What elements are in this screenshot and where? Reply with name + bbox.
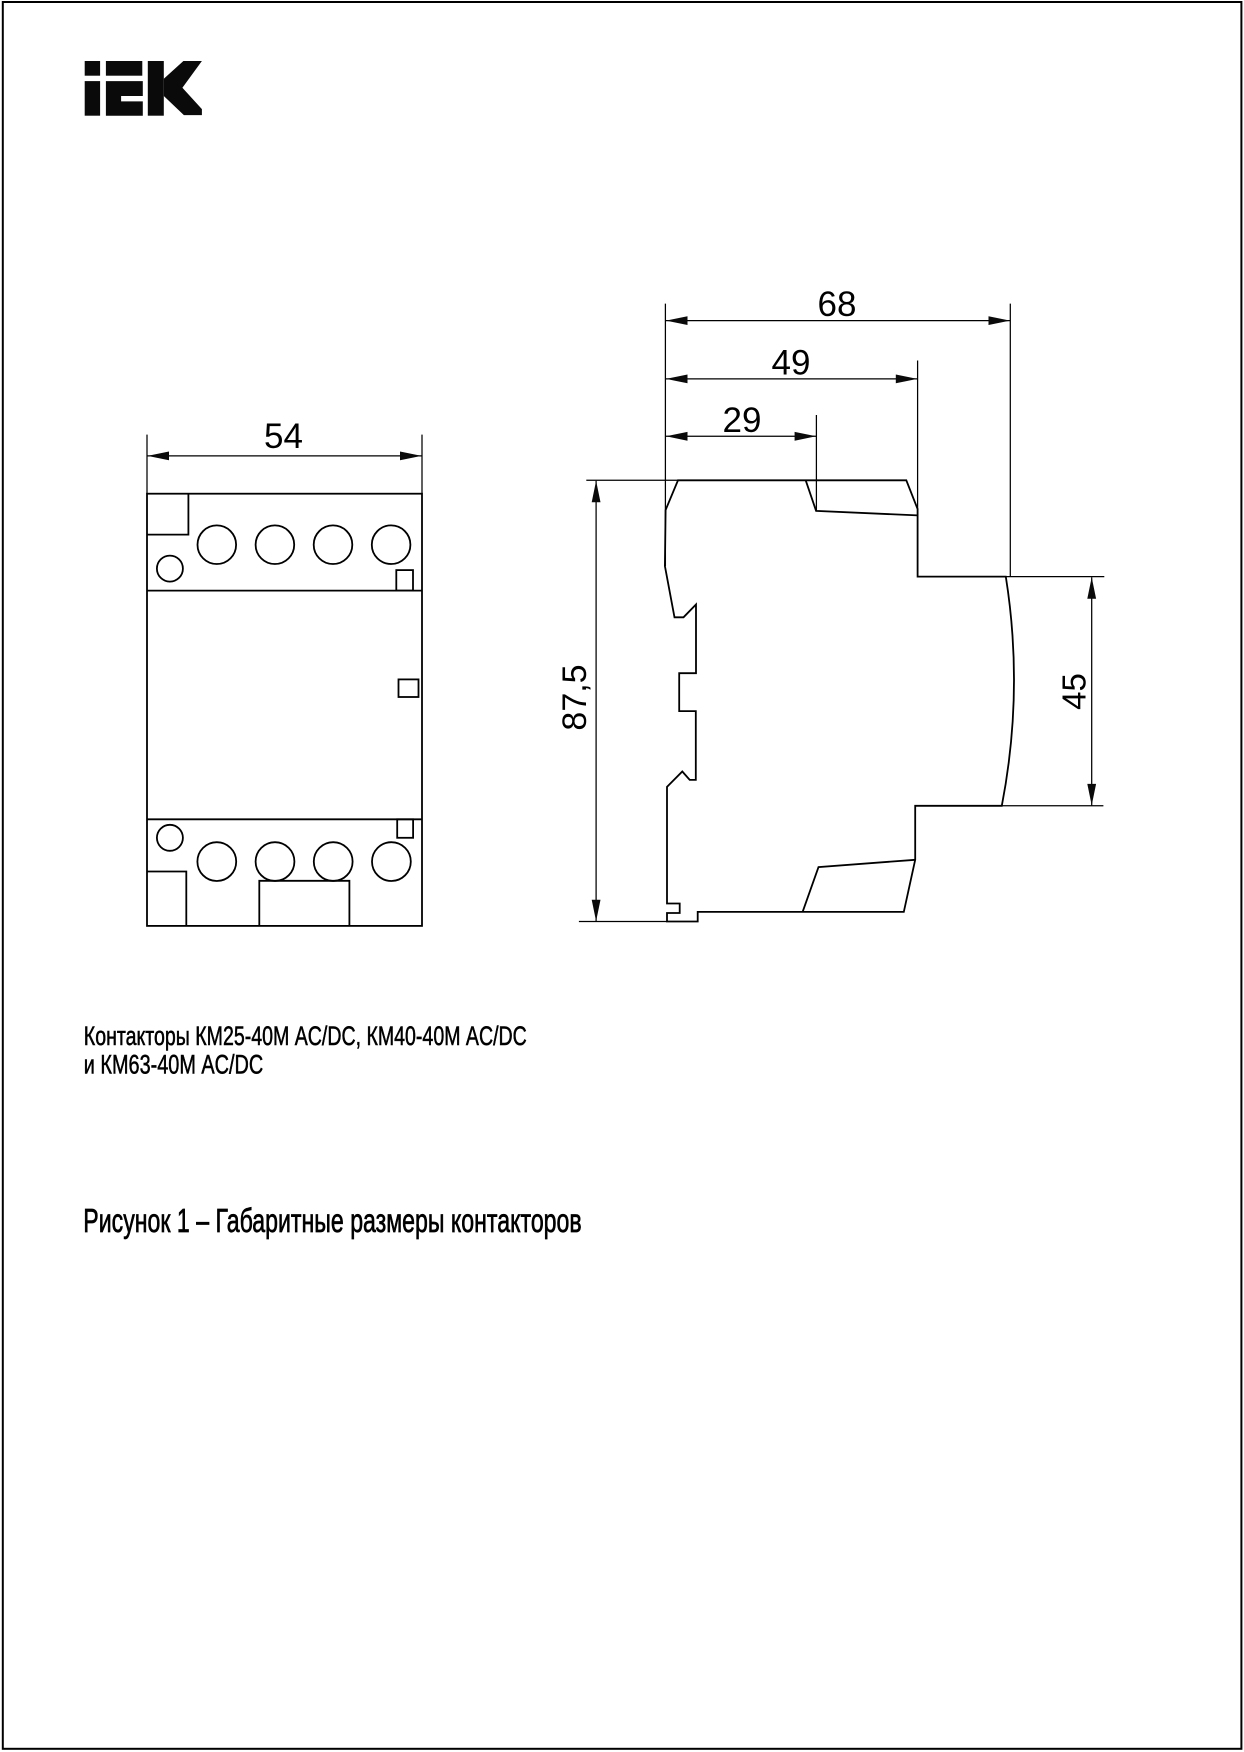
svg-text:54: 54 [264,417,303,456]
svg-text:Контакторы КМ25-40М AC/DC, КМ4: Контакторы КМ25-40М AC/DC, КМ40-40М AC/D… [84,1021,527,1051]
svg-text:45: 45 [1056,673,1093,710]
svg-text:Рисунок 1 – Габаритные размеры: Рисунок 1 – Габаритные размеры контактор… [83,1202,581,1239]
svg-text:49: 49 [772,344,811,383]
svg-text:68: 68 [818,285,857,324]
svg-text:87,5: 87,5 [556,664,594,730]
svg-text:29: 29 [723,401,762,440]
svg-text:и КМ63-40М AC/DC: и КМ63-40М AC/DC [84,1050,263,1080]
